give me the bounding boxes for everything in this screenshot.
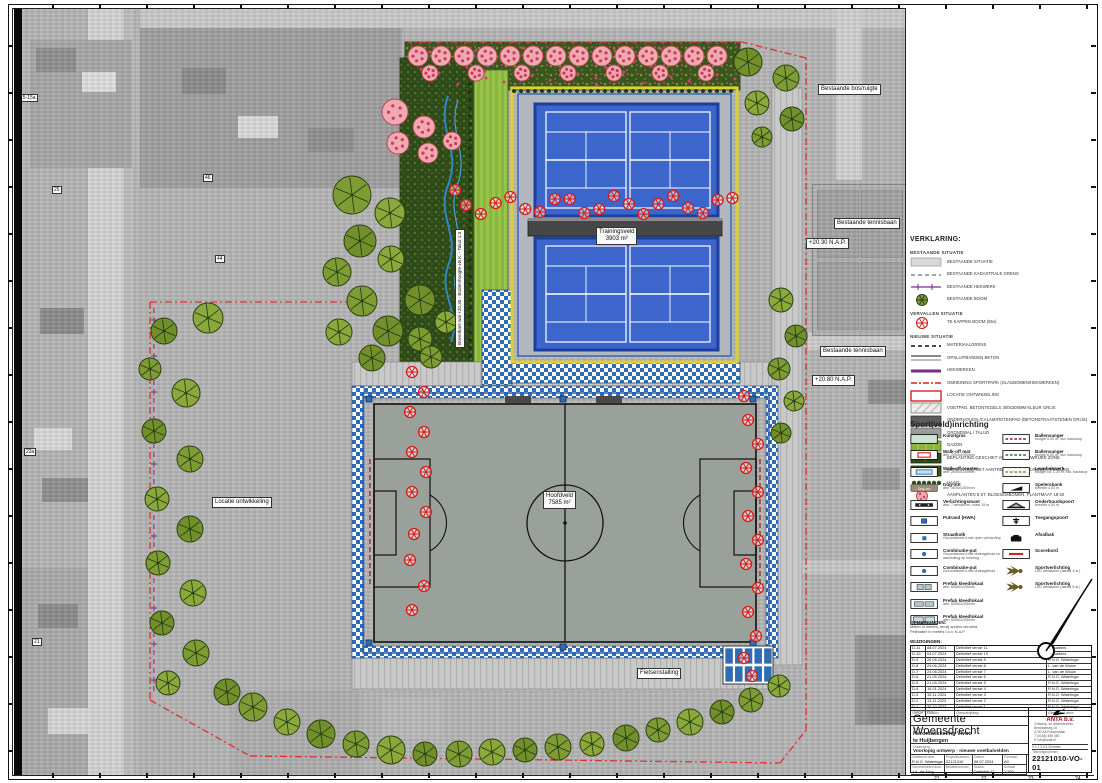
- sport-item-sub: hoogte ca. 1.20 m, incl. backstop: [1035, 471, 1093, 475]
- edge-tick: [193, 773, 195, 778]
- revision-row: D-521.05.2024Definitief versie 5R.N.O. W…: [911, 680, 1091, 686]
- afvalbak-icon: [1002, 532, 1032, 544]
- putrand-icon: [910, 515, 940, 527]
- label-trainingsveld: Trainingsveld3903 m²: [596, 227, 637, 245]
- sport-legend-item: Kunstgras: [910, 433, 1002, 448]
- edge-tick: [1091, 374, 1096, 376]
- sport-legend-item: Spelersbankbreedte 3.00 m: [1002, 482, 1094, 497]
- sport-legend-text: Putrand (HWA): [943, 515, 975, 520]
- edge-tick: [1091, 186, 1096, 188]
- sport-legend-title: Sport(veld)inrichting: [910, 420, 989, 429]
- legend-item-label: TE KAPPEN BOOM (65x): [947, 320, 996, 325]
- label-nap-2: +20.80 N.A.P.: [812, 375, 855, 386]
- title-block-fields: Getekend door:R.N.O. WateringaProjectnum…: [911, 755, 1028, 775]
- field-value: Definitief-11: [974, 769, 1001, 774]
- subject-value: Voorlopig ontwerp - nieuwe voetbalvelden: [913, 749, 1026, 754]
- legend-item: OMHEINING SPORTPARK (SLAGBOMEN/HEKWERKEN…: [910, 377, 1090, 389]
- sport-item-sub: breedte 3.00 m: [1035, 487, 1093, 491]
- label-nap-1: +20.30 N.A.P.: [806, 238, 849, 249]
- sport-legend-text: Scorebord: [1035, 548, 1058, 553]
- edge-tick: [851, 773, 853, 778]
- binding-margin-bar: [14, 8, 22, 775]
- edge-tick: [428, 4, 430, 9]
- edge-tick: [757, 4, 759, 9]
- sport-legend-text: Afvalbak: [1035, 532, 1054, 537]
- title-block-field: Status:Definitief-11: [973, 765, 1003, 775]
- revision-cell: 26.06.2024: [925, 658, 954, 663]
- label-house-number: 21: [32, 638, 42, 646]
- edge-tick: [1091, 280, 1096, 282]
- edge-tick: [475, 773, 477, 778]
- revision-cell: D-11: [911, 646, 925, 651]
- sport-legend-text: Ballenvangerhoogte 6.00 m, incl. backsto…: [1035, 449, 1093, 458]
- label-house-number: 25: [52, 186, 62, 194]
- prefab1-icon: [910, 581, 940, 593]
- legend-title: VERKLARING:: [910, 236, 961, 243]
- sport-legend-item: Ballenvangerhoogte 5.00 m, incl. backsto…: [1002, 433, 1094, 448]
- edge-tick: [8, 186, 13, 188]
- legend-item-label: HEKWERKEN: [947, 368, 975, 373]
- legend-item: BESTAANDE KADASTRALE GRENS: [910, 269, 1090, 281]
- edge-tick: [8, 92, 13, 94]
- sport-legend-text: Leunhekwerkhoogte ca. 1.20 m, incl. back…: [1035, 466, 1093, 475]
- revision-row: D-315.11.2023Definitief versie 3R.N.O. W…: [911, 692, 1091, 698]
- revision-cell: R.N.O. Wateringa: [1046, 681, 1091, 686]
- edge-tick: [1091, 468, 1096, 470]
- edge-tick: [1086, 4, 1088, 9]
- sport-item-sub: Gecombineerd met open verharding: [943, 537, 1001, 541]
- field-value: 22121010: [946, 759, 971, 764]
- edge-tick: [8, 562, 13, 564]
- sport-legend-item: Combinatie-putGecombineerd met drainageb…: [910, 565, 1002, 580]
- title-block-field: Schaal:1:250: [1003, 765, 1027, 775]
- edge-tick: [8, 280, 13, 282]
- revision-row: D-416.01.2024Definitief versie 4R.N.O. W…: [911, 686, 1091, 692]
- red-box-icon: [910, 390, 944, 402]
- revision-cell: R.N.O. Wateringa: [1046, 693, 1091, 698]
- revision-cell: D-7: [911, 670, 925, 675]
- edge-tick: [898, 773, 900, 778]
- edge-tick: [1091, 656, 1096, 658]
- title-block: Opdrachtgever: Gemeente Woensdrecht Proj…: [910, 707, 1092, 773]
- legend-item-label: BESTAANDE KADASTRALE GRENS: [947, 272, 1019, 277]
- onderhoudspoort-icon: [1002, 499, 1032, 511]
- sport-legend-text: Spelersbankbreedte 3.00 m: [1035, 482, 1093, 491]
- edge-tick: [1091, 515, 1096, 517]
- edge-tick: [522, 4, 524, 9]
- revision-cell: R.N.O. Wateringa: [1046, 675, 1091, 680]
- edge-tick: [851, 4, 853, 9]
- revision-cell: 21.05.2024: [925, 681, 954, 686]
- tree-red-icon: [910, 317, 944, 329]
- edge-tick: [8, 374, 13, 376]
- sport-item-label: Putrand (HWA): [943, 515, 975, 520]
- edge-tick: [8, 609, 13, 611]
- edge-tick: [1086, 773, 1088, 778]
- sport-item-sub: afm. 3000x1500mm: [943, 487, 1001, 491]
- edge-tick: [1091, 703, 1096, 705]
- revision-cell: 13.11.2023: [925, 699, 954, 704]
- legend-item-label: VOETPAD, BETONTEGELS 300x300MM KLEUR GRI…: [947, 406, 1056, 411]
- sport-item-label: Afvalbak: [1035, 532, 1054, 537]
- field-value: 1:250: [1004, 769, 1025, 774]
- label-bestaande-tennisbaan-2: Bestaande tennisbaan: [820, 346, 886, 357]
- scorebord-icon: [1002, 548, 1032, 560]
- revision-cell: Definitief versie 6: [954, 675, 1046, 680]
- sport-legend-text: Prefab kleedlokaalafm. 6055x2435mm: [943, 598, 1001, 607]
- sport-legend-text: Onderhoudspoortbreedte 4.00 m: [1035, 499, 1093, 508]
- title-block-field: Besteknummer:—: [945, 765, 973, 775]
- hatch-gray-icon: [910, 402, 944, 414]
- sport-legend-item: Toegangspoort: [1002, 515, 1094, 530]
- sport-legend-item: Combinatie-putGecombineerd met drainageb…: [910, 548, 1002, 563]
- sport-legend-item: Ballenvangerhoogte 6.00 m, incl. backsto…: [1002, 449, 1094, 464]
- sport-legend-item: Scorebord: [1002, 548, 1094, 563]
- legend-item: MATERIAALGRENS: [910, 340, 1090, 352]
- revision-cell: 08.07.2024: [925, 646, 954, 651]
- edge-tick: [569, 773, 571, 778]
- revision-cell: D-8: [911, 664, 925, 669]
- sport-legend-text: Walk-off matafm. 2000x1000mm: [943, 449, 1001, 458]
- sheet-grid-number: 23: [1028, 776, 1034, 782]
- title-block-field: Datum:08.07.2024: [973, 755, 1003, 765]
- title-block-right: ANTA b.v. Ontwerp- en adviesbureauBredas…: [1029, 708, 1091, 772]
- legend-item: HEKWERKEN: [910, 365, 1090, 377]
- purple-fence-icon: [910, 281, 944, 293]
- revision-cell: Definitief versie 4: [954, 687, 1046, 692]
- spelersbank-icon: [1002, 482, 1032, 494]
- notes-block: OPMERKINGEN: Maten in meters, tenzij and…: [910, 620, 1030, 635]
- legend-item-label: MATERIAALGRENS: [947, 343, 986, 348]
- revision-cell: Definitief versie 2: [954, 699, 1046, 704]
- toegangspoort-icon: [1002, 515, 1032, 527]
- sport-legend-item: Verlichtingsmastafm. 7 armaturen, mast 1…: [910, 499, 1002, 514]
- revision-row: D-621.05.2024Definitief versie 6R.N.O. W…: [911, 674, 1091, 680]
- title-block-field: Projectnummer:22121010: [945, 755, 973, 765]
- sport-item-sub: hoogte 5.00 m, incl. backstop: [1035, 438, 1093, 442]
- revision-cell: 24.06.2024: [925, 664, 954, 669]
- sport-legend-text: Kunstgras: [943, 433, 966, 438]
- straatkolk-icon: [910, 532, 940, 544]
- sport-item-sub: afm. 6055x2435mm: [943, 603, 1001, 607]
- gray-fill-icon: [910, 256, 944, 268]
- title-block-field: Getekend door:R.N.O. Wateringa: [911, 755, 945, 765]
- edge-tick: [428, 773, 430, 778]
- lichtmast-icon: [910, 499, 940, 511]
- kunstgras-icon: [910, 433, 940, 445]
- label-fietsenstalling: Fietsenstalling: [637, 668, 681, 679]
- sheet-grid-number: 21: [934, 776, 940, 782]
- label-grondwal: Bovenkant wal +20.30 - Bodemhoogte ±B.K.…: [455, 229, 465, 348]
- edge-tick: [710, 4, 712, 9]
- revision-cell: L. van de Wouw: [1046, 670, 1091, 675]
- walkoff-mat-icon: [910, 449, 940, 461]
- edge-tick: [99, 773, 101, 778]
- edge-tick: [569, 4, 571, 9]
- edge-tick: [381, 4, 383, 9]
- combiput-icon: [910, 565, 940, 577]
- legend-item: VOETPAD, BETONTEGELS 300x300MM KLEUR GRI…: [910, 402, 1090, 414]
- edge-tick: [1039, 4, 1041, 9]
- edge-tick: [8, 750, 13, 752]
- revision-cell: D-3: [911, 693, 925, 698]
- sport-legend-item: Walk-off matafm. 2000x1000mm: [910, 449, 1002, 464]
- company-line: E info@anta.nl: [1034, 739, 1086, 743]
- legend-item-label: OMHEINING SPORTPARK (SLAGBOMEN/HEKWERKEN…: [947, 381, 1059, 386]
- sport-item-sub: breedte 4.00 m: [1035, 504, 1093, 508]
- revision-cell: 21.05.2024: [925, 675, 954, 680]
- legend-item-label: BESTAANDE BOOM: [947, 297, 987, 302]
- label-bestaande-bos: Bestaande bos/ruigte: [818, 84, 881, 95]
- edge-tick: [663, 4, 665, 9]
- label-house-number: 23a: [24, 448, 36, 456]
- edge-tick: [616, 4, 618, 9]
- tree-green-icon: [910, 294, 944, 306]
- gray-band-icon: [910, 352, 944, 364]
- field-value: A0: [1004, 759, 1025, 764]
- edge-tick: [287, 4, 289, 9]
- revision-row: D-724.06.2024Definitief versie 7L. van d…: [911, 669, 1091, 675]
- sheet-grid-number: 24: [1075, 776, 1081, 782]
- edge-tick: [522, 773, 524, 778]
- title-block-field: Gecontroleerd door:J.A. de Jong: [911, 765, 945, 775]
- drawing-number: 22121010-VO-01: [1032, 754, 1088, 772]
- sheet-grid-number: 22: [981, 776, 987, 782]
- edge-tick: [8, 421, 13, 423]
- revision-cell: 04.07.2024: [925, 652, 954, 657]
- edge-tick: [663, 773, 665, 778]
- sport-legend-item: Dug-outDug-outafm. 3000x1500mm: [910, 482, 1002, 497]
- legend-item-label: BESTAANDE HEKWERK: [947, 285, 996, 290]
- label-bestaande-tennisbaan-1: Bestaande tennisbaan: [834, 218, 900, 229]
- revision-cell: D-5: [911, 681, 925, 686]
- edge-tick: [992, 773, 994, 778]
- black-dash-icon: [910, 340, 944, 352]
- sport-legend-text: Toegangspoort: [1035, 515, 1068, 520]
- sport-legend-text: Dug-outafm. 3000x1500mm: [943, 482, 1001, 491]
- edge-tick: [1091, 562, 1096, 564]
- revision-cell: D-4: [911, 687, 925, 692]
- revision-cell: Definitief versie 5: [954, 681, 1046, 686]
- ballenvanger-rood-icon: [1002, 433, 1032, 445]
- prefab2-icon: [910, 598, 940, 610]
- edge-tick: [1091, 92, 1096, 94]
- purple-solid-icon: [910, 365, 944, 377]
- sport-item-label: Scorebord: [1035, 548, 1058, 553]
- sport-legend-item: Onderhoudspoortbreedte 4.00 m: [1002, 499, 1094, 514]
- sport-legend-text: Verlichtingsmastafm. 7 armaturen, mast 1…: [943, 499, 1001, 508]
- dugout-icon: Dug-out: [910, 482, 940, 494]
- edge-tick: [381, 773, 383, 778]
- label-hoofdveld: Hoofdveld7585 m²: [543, 491, 576, 509]
- sport-item-sub: afm. 2000x1000mm: [943, 471, 1001, 475]
- legend-section-header: BESTAANDE SITUATIE: [910, 250, 1090, 255]
- bird-logo-icon: [1040, 708, 1080, 717]
- legend-item: TE KAPPEN BOOM (65x): [910, 317, 1090, 329]
- edge-tick: [898, 4, 900, 9]
- edge-tick: [475, 4, 477, 9]
- edge-tick: [240, 4, 242, 9]
- edge-tick: [334, 4, 336, 9]
- gray-dash-icon: [910, 269, 944, 281]
- legend-item: LOCATIE ONTWIKKELING: [910, 390, 1090, 402]
- sport-item-sub: afm. 2000x1000mm: [943, 454, 1001, 458]
- edge-tick: [8, 139, 13, 141]
- legend-item: BESTAANDE SITUATIE: [910, 256, 1090, 268]
- sport-legend-text: Prefab kleedlokaalafm. 6055x2435mm: [943, 581, 1001, 590]
- legend-item-label: LOCATIE ONTWIKKELING: [947, 393, 999, 398]
- edge-tick: [240, 773, 242, 778]
- legend-item: OPSLUITBANDEN BETON: [910, 352, 1090, 364]
- sport-legend-item: Afvalbak: [1002, 532, 1094, 547]
- legend-item: BESTAANDE HEKWERK: [910, 281, 1090, 293]
- sport-legend-item: Leunhekwerkhoogte ca. 1.20 m, incl. back…: [1002, 466, 1094, 481]
- sport-item-sub: Gecombineerd met drainagebuis en aanslui…: [943, 553, 1001, 561]
- field-value: R.N.O. Wateringa: [912, 759, 943, 764]
- red-dashdot-icon: [910, 377, 944, 389]
- label-locatie-ontwikkeling: Locatie ontwikkeling: [212, 497, 272, 508]
- legend-section-header: VERVALLEN SITUATIE: [910, 311, 1090, 316]
- field-value: —: [946, 769, 971, 774]
- edge-tick: [1091, 45, 1096, 47]
- sport-legend-item: StraatkolkGecombineerd met open verhardi…: [910, 532, 1002, 547]
- edge-tick: [945, 4, 947, 9]
- revision-table-title: WIJZIGINGEN:: [910, 639, 942, 644]
- revision-row: D-213.11.2023Definitief versie 2R.N.O. W…: [911, 698, 1091, 704]
- sport-legend-text: Walk-off roosterafm. 2000x1000mm: [943, 466, 1001, 475]
- sport-item-sub: hoogte 6.00 m, incl. backstop: [1035, 454, 1093, 458]
- edge-tick: [193, 4, 195, 9]
- legend-item: BESTAANDE BOOM: [910, 294, 1090, 306]
- edge-tick: [334, 773, 336, 778]
- legend-item-label: BESTAANDE SITUATIE: [947, 260, 993, 265]
- edge-tick: [1091, 750, 1096, 752]
- edge-tick: [8, 233, 13, 235]
- field-value: 08.07.2024: [974, 759, 1001, 764]
- edge-tick: [52, 4, 54, 9]
- edge-tick: [1091, 327, 1096, 329]
- revision-cell: D-9: [911, 658, 925, 663]
- sport-legend-text: StraatkolkGecombineerd met open verhardi…: [943, 532, 1001, 541]
- revision-cell: R.N.O. Wateringa: [1046, 687, 1091, 692]
- edge-tick: [8, 327, 13, 329]
- sport-legend-item: Putrand (HWA): [910, 515, 1002, 530]
- notes-line: Peilmaten in meters t.o.v. N.A.P.: [910, 630, 1030, 635]
- edge-tick: [8, 45, 13, 47]
- revision-cell: 24.06.2024: [925, 670, 954, 675]
- sport-item-sub: Gecombineerd met drainagebuis: [943, 570, 1001, 574]
- edge-tick: [992, 4, 994, 9]
- ballenvanger-groen-icon: [1002, 449, 1032, 461]
- edge-tick: [146, 773, 148, 778]
- sport-legend-left: KunstgrasWalk-off matafm. 2000x1000mmWal…: [910, 431, 1002, 631]
- revision-cell: 15.11.2023: [925, 693, 954, 698]
- edge-tick: [99, 4, 101, 9]
- label-house-number: 44: [215, 255, 225, 263]
- title-block-field: Formaat:A0: [1003, 755, 1027, 765]
- svg-text:Dug-out: Dug-out: [918, 487, 931, 491]
- sport-legend-text: Combinatie-putGecombineerd met drainageb…: [943, 548, 1001, 561]
- edge-tick: [1039, 773, 1041, 778]
- sport-legend-text: Combinatie-putGecombineerd met drainageb…: [943, 565, 1001, 574]
- edge-tick: [8, 468, 13, 470]
- combiput-icon: [910, 548, 940, 560]
- sport-legend-item: Prefab kleedlokaalafm. 6055x2435mm: [910, 581, 1002, 596]
- edge-tick: [757, 773, 759, 778]
- legend-panel: VERKLARING: BESTAANDE SITUATIEBESTAANDE …: [905, 8, 1094, 775]
- sport-item-label: Kunstgras: [943, 433, 966, 438]
- project-line-1: Herontwikkeling Vivoo: [913, 731, 1026, 738]
- sport-legend-text: Ballenvangerhoogte 5.00 m, incl. backsto…: [1035, 433, 1093, 442]
- edge-tick: [1091, 139, 1096, 141]
- edge-tick: [52, 773, 54, 778]
- edge-tick: [710, 773, 712, 778]
- edge-tick: [1091, 421, 1096, 423]
- edge-tick: [804, 4, 806, 9]
- walkoff-rooster-icon: [910, 466, 940, 478]
- edge-tick: [146, 4, 148, 9]
- drawing-sheet: Bestaande bos/ruigteBestaande tennisbaan…: [0, 0, 1102, 783]
- edge-tick: [804, 773, 806, 778]
- leunhek-icon: [1002, 466, 1032, 478]
- revision-cell: 16.01.2024: [925, 687, 954, 692]
- legend-section-header: NIEUWE SITUATIE: [910, 334, 1090, 339]
- title-block-left: Opdrachtgever: Gemeente Woensdrecht Proj…: [911, 708, 1029, 772]
- edge-tick: [616, 773, 618, 778]
- edge-tick: [8, 703, 13, 705]
- field-value: J.A. de Jong: [912, 769, 943, 774]
- legend-item-label: OPSLUITBANDEN BETON: [947, 356, 999, 361]
- edge-tick: [1091, 609, 1096, 611]
- revision-cell: D-6: [911, 675, 925, 680]
- edge-tick: [8, 515, 13, 517]
- sport-item-sub: afm. 7 armaturen, mast 15 m: [943, 504, 1001, 508]
- edge-tick: [287, 773, 289, 778]
- revision-cell: D-10: [911, 652, 925, 657]
- edge-tick: [945, 773, 947, 778]
- sport-legend-item: Walk-off roosterafm. 2000x1000mm: [910, 466, 1002, 481]
- company-address: Ontwerp- en adviesbureauBredaseweg 10470…: [1034, 723, 1086, 743]
- sport-item-sub: afm. 6055x2435mm: [943, 586, 1001, 590]
- revision-cell: Definitief versie 7: [954, 670, 1046, 675]
- revision-cell: D-2: [911, 699, 925, 704]
- sport-item-label: Toegangspoort: [1035, 515, 1068, 520]
- revision-cell: Definitief versie 3: [954, 693, 1046, 698]
- label-house-number: 46: [203, 174, 213, 182]
- sport-legend-item: Prefab kleedlokaalafm. 6055x2435mm: [910, 598, 1002, 613]
- edge-tick: [1091, 233, 1096, 235]
- revision-cell: R.N.O. Wateringa: [1046, 699, 1091, 704]
- edge-tick: [8, 656, 13, 658]
- north-arrow-icon: [1024, 571, 1099, 666]
